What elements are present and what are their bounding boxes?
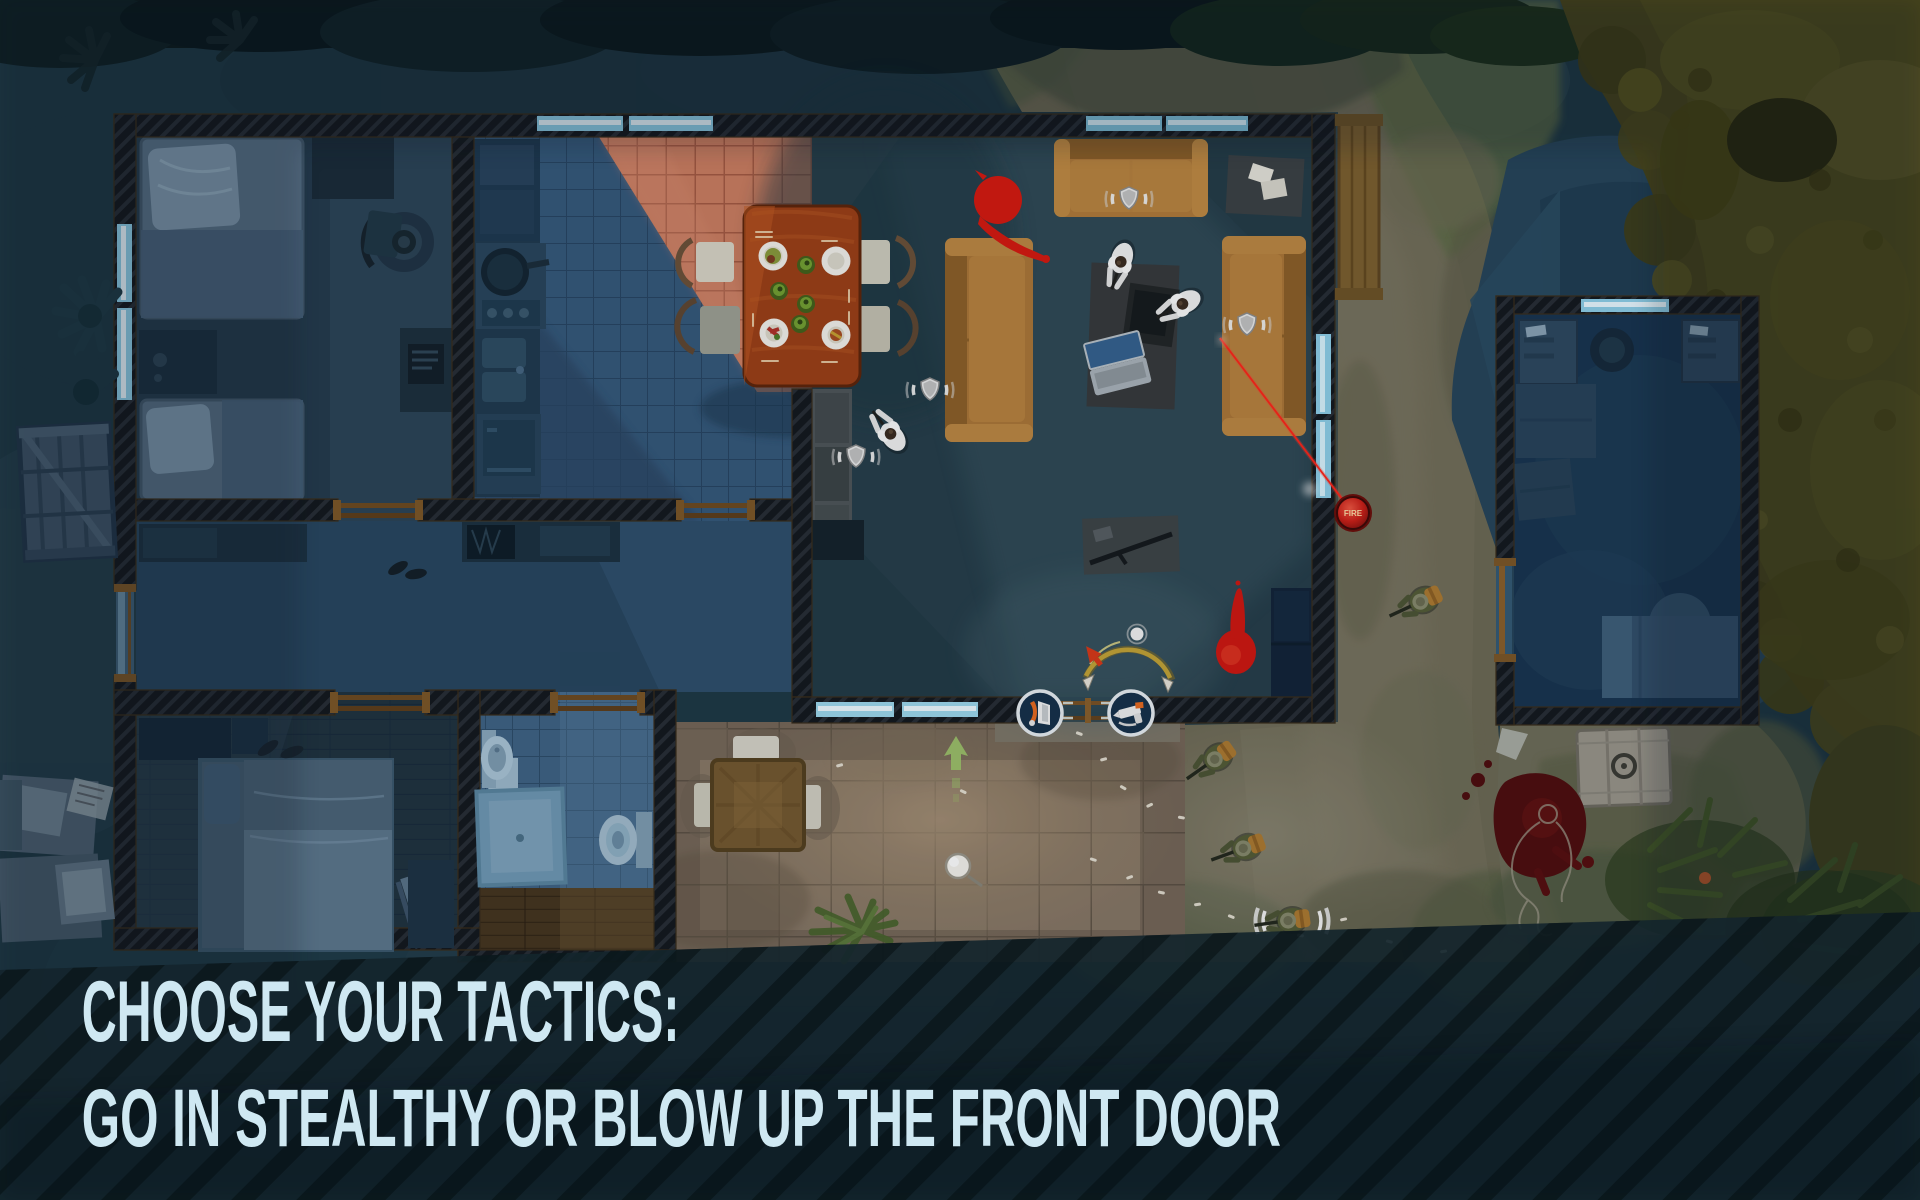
svg-text:CHOOSE YOUR TACTICS:: CHOOSE YOUR TACTICS: (82, 964, 680, 1060)
svg-text:GO IN STEALTHY OR BLOW UP THE: GO IN STEALTHY OR BLOW UP THE FRONT DOOR (82, 1072, 1281, 1164)
